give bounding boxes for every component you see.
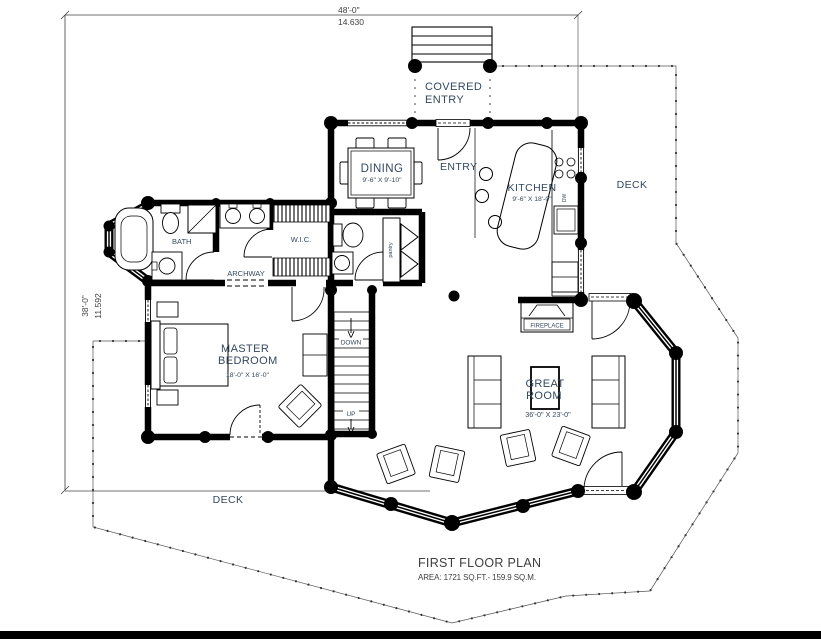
dim-left-meters: 11.592 [93, 293, 103, 319]
headboard [151, 321, 160, 389]
label-bath: BATH [172, 237, 191, 246]
bar-stool [489, 216, 502, 229]
label-covered-entry-2: ENTRY [425, 94, 464, 106]
armchair [429, 445, 465, 483]
floor-plan-canvas: 48'-0" 14.630 38'-0" 11.592 COVERED ENTR… [0, 0, 821, 639]
dim-top-meters: 14.630 [338, 17, 364, 27]
label-wic: W.I.C. [291, 235, 311, 244]
floor-plan-page: 48'-0" 14.630 38'-0" 11.592 COVERED ENTR… [0, 0, 821, 639]
pillow [164, 328, 177, 354]
bar-stool [480, 168, 493, 181]
nightstand [157, 302, 178, 317]
plan-area: AREA: 1721 SQ.FT.- 159.9 SQ.M. [418, 573, 536, 582]
armchair [278, 384, 322, 428]
wic-shelf-top [273, 205, 330, 222]
label-great-1: GREAT [525, 378, 564, 390]
wic-shelf-bottom [273, 258, 330, 276]
label-master-dims: 18'-0" X 16'-0" [226, 372, 270, 379]
label-kitchen: KITCHEN [508, 182, 557, 194]
deck-door-right-swing [592, 301, 630, 339]
toilet-tank [161, 204, 180, 213]
label-dining: DINING [361, 163, 404, 175]
kitchen-fixtures [475, 128, 578, 296]
covered-entry [412, 27, 492, 120]
wic-door-swing [244, 229, 272, 257]
great-room-furniture [376, 356, 625, 484]
sofa-right [592, 356, 625, 428]
label-kitchen-dims: 9'-6" X 18'-0" [512, 196, 552, 203]
deck-door-right-panel [589, 294, 631, 302]
armchair [551, 426, 590, 466]
center-post [449, 291, 460, 302]
archway-dashes [227, 280, 266, 286]
toilet-bowl [163, 213, 179, 234]
entry-door-swing [438, 128, 470, 160]
master-deck-door-swing [230, 405, 260, 435]
label-covered-entry-1: COVERED [425, 81, 482, 93]
label-dishwasher: DW [562, 194, 568, 203]
label-fireplace: FIREPLACE [530, 324, 563, 330]
range [554, 206, 578, 234]
bath-fixtures [115, 204, 418, 286]
label-great-dims: 36'-0" X 23'-0" [525, 410, 571, 419]
master-door-swing [292, 287, 324, 321]
label-stairs-up: UP [346, 411, 355, 418]
deck-door-bottom-swing [584, 452, 622, 488]
label-great-2: ROOM [526, 390, 562, 402]
dim-left-feet: 38'-0" [80, 295, 90, 317]
label-master-1: MASTER [221, 343, 269, 355]
pillow [164, 357, 177, 383]
label-dining-dims: 9'-6" X 9'-10" [362, 177, 402, 184]
plan-title: FIRST FLOOR PLAN [418, 556, 541, 570]
label-pantry: pantry [388, 242, 394, 258]
label-entry: ENTRY [440, 161, 477, 173]
powder-toilet-bowl [343, 223, 363, 247]
powder-door-swing [355, 252, 383, 280]
armchair [500, 429, 536, 467]
powder-toilet-tank [333, 224, 342, 246]
label-archway: ARCHWAY [227, 269, 265, 278]
label-deck-bottom: DECK [213, 494, 244, 506]
nightstand [157, 390, 178, 405]
sofa-left [468, 356, 501, 428]
armchair [376, 444, 415, 484]
bottom-bar [0, 631, 821, 639]
label-master-2: BEDROOM [218, 355, 278, 367]
dim-top-feet: 48'-0" [338, 5, 360, 15]
label-stairs-down: DOWN [341, 340, 362, 347]
bar-stool [476, 190, 489, 203]
pantry-bifold-doors [401, 224, 418, 277]
label-deck-right: DECK [617, 179, 648, 191]
bath-door-swing [186, 252, 214, 280]
